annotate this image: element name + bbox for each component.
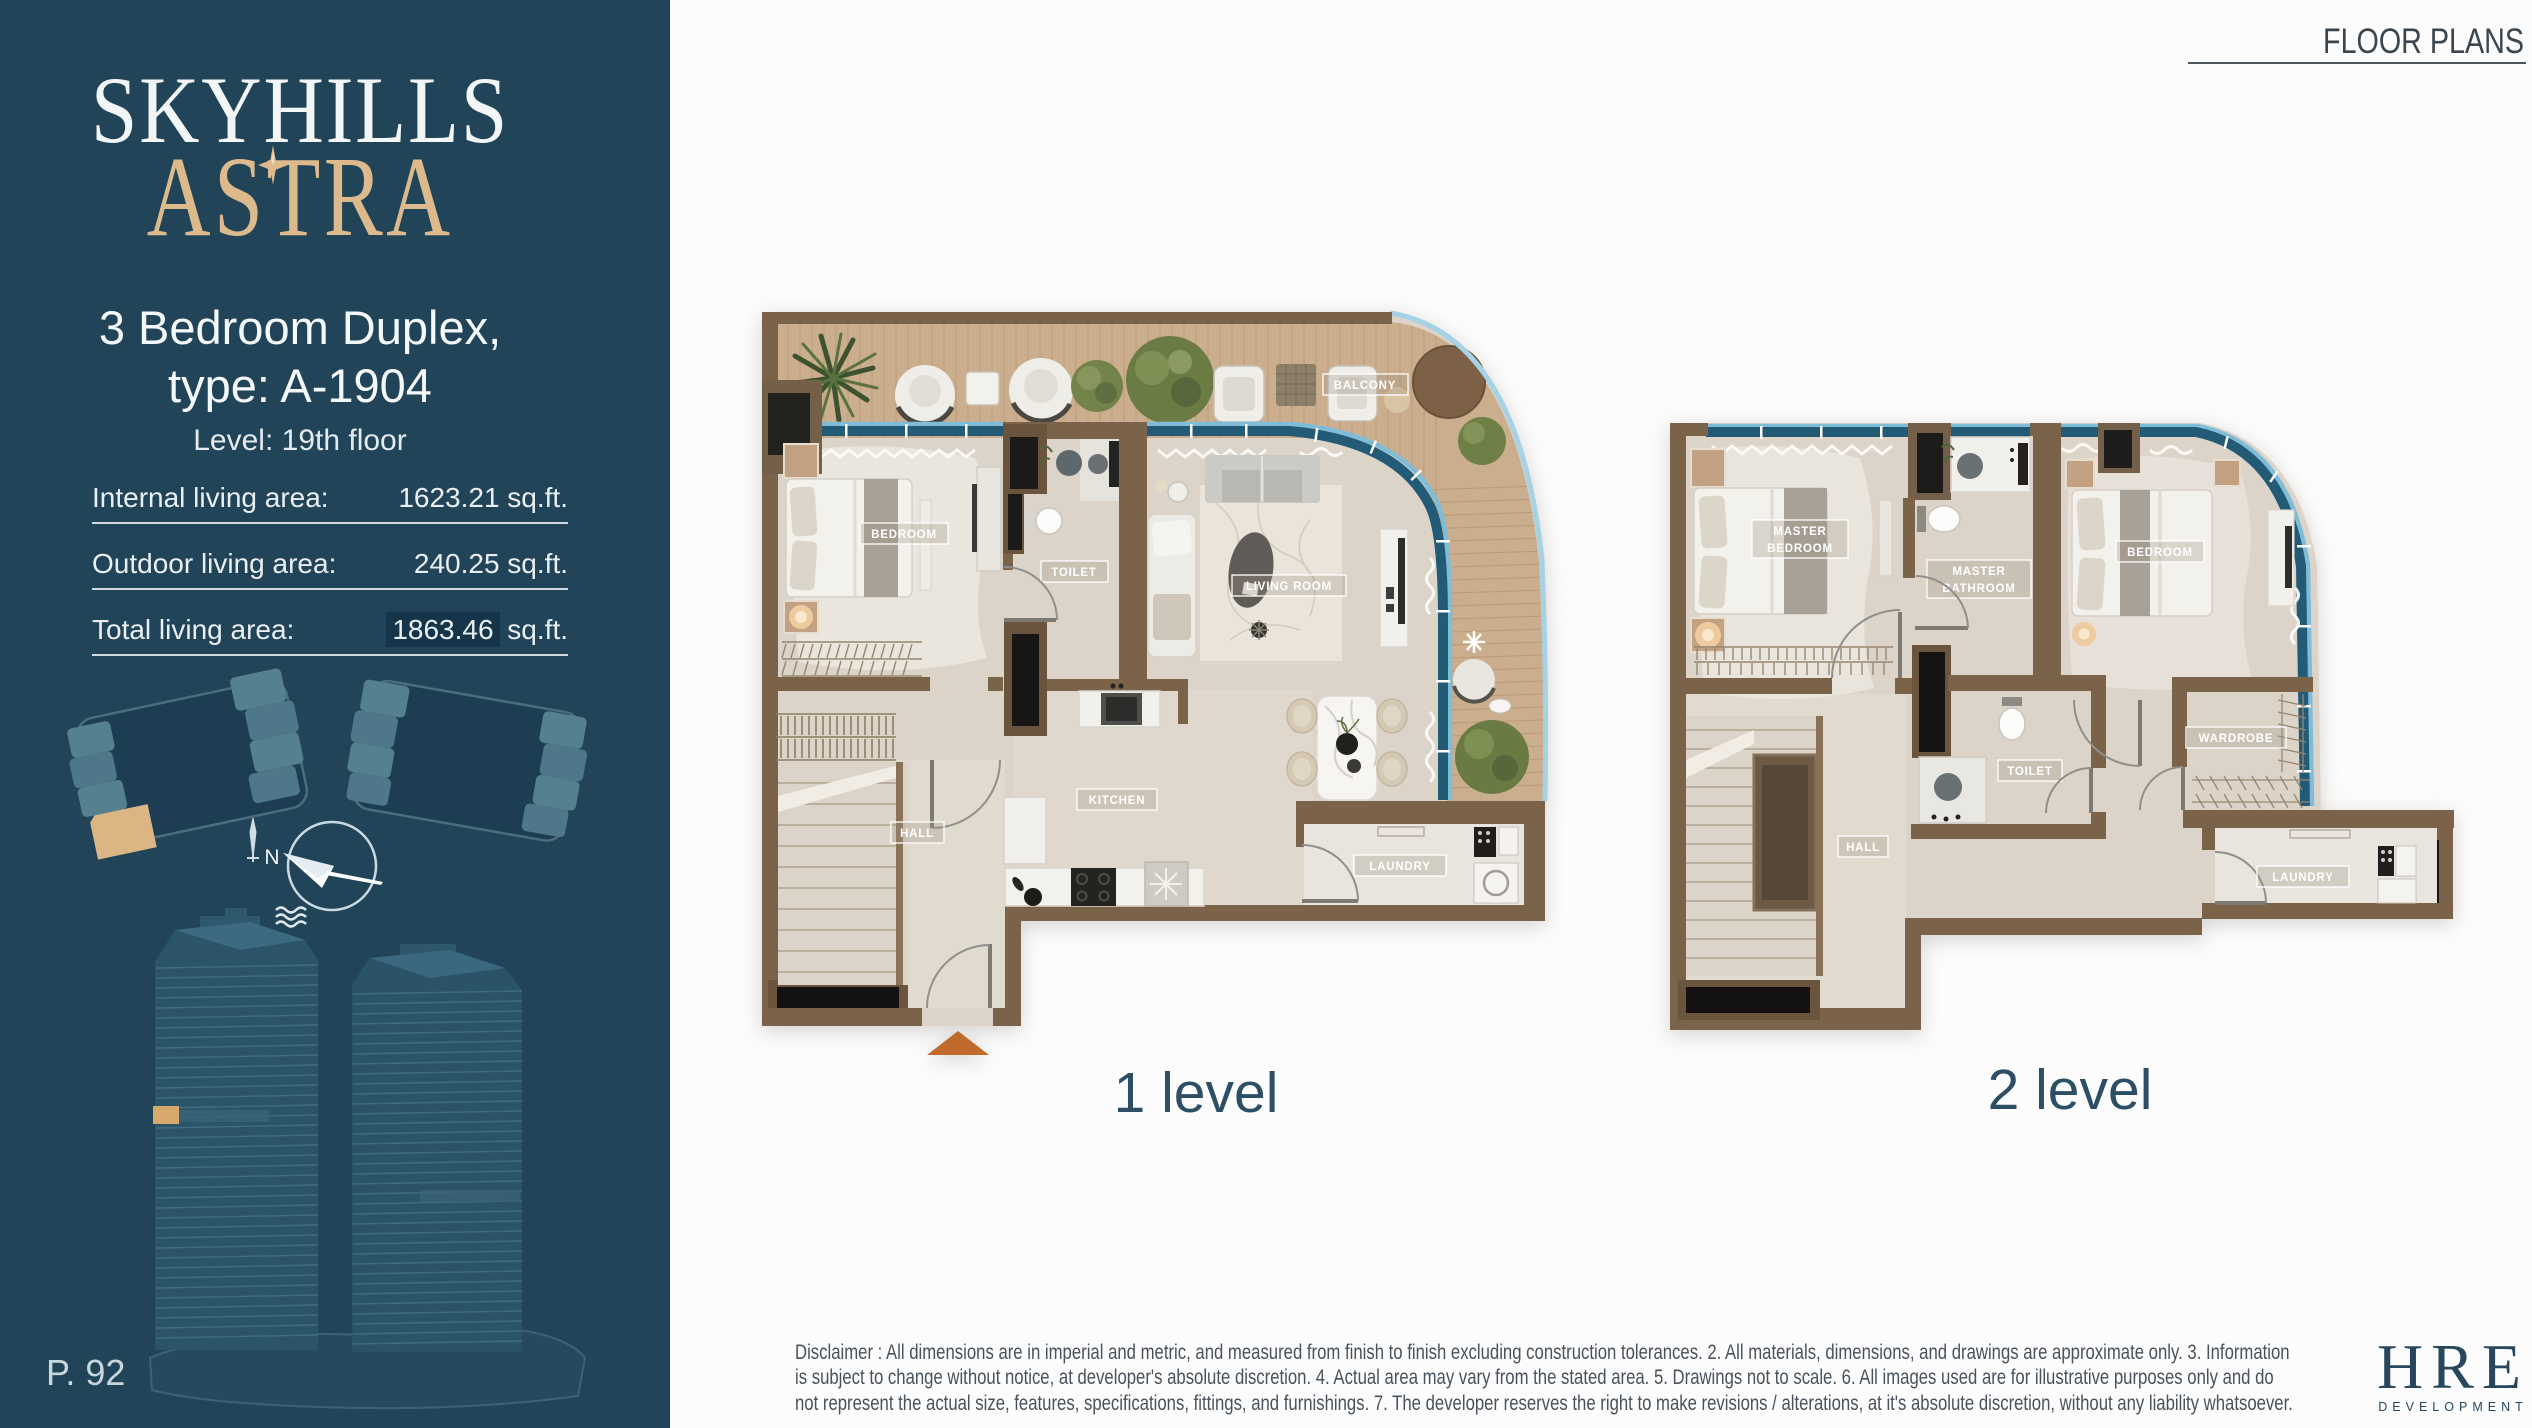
svg-text:MASTER: MASTER <box>1773 526 1826 538</box>
svg-text:WARDROBE: WARDROBE <box>2199 733 2274 745</box>
svg-text:MASTER: MASTER <box>1952 566 2005 578</box>
svg-text:BALCONY: BALCONY <box>1334 380 1396 392</box>
svg-text:N: N <box>264 846 279 869</box>
svg-text:LIVING ROOM: LIVING ROOM <box>1246 581 1332 593</box>
svg-text:LAUNDRY: LAUNDRY <box>1369 861 1430 873</box>
svg-text:HALL: HALL <box>1846 842 1880 854</box>
svg-text:LAUNDRY: LAUNDRY <box>2272 872 2333 884</box>
svg-text:BEDROOM: BEDROOM <box>2127 547 2193 559</box>
svg-text:BEDROOM: BEDROOM <box>871 529 937 541</box>
svg-text:TOILET: TOILET <box>1051 567 1096 579</box>
svg-text:BEDROOM: BEDROOM <box>1767 543 1833 555</box>
svg-text:TOILET: TOILET <box>2007 766 2052 778</box>
svg-text:KITCHEN: KITCHEN <box>1089 795 1146 807</box>
svg-text:HALL: HALL <box>900 828 934 840</box>
